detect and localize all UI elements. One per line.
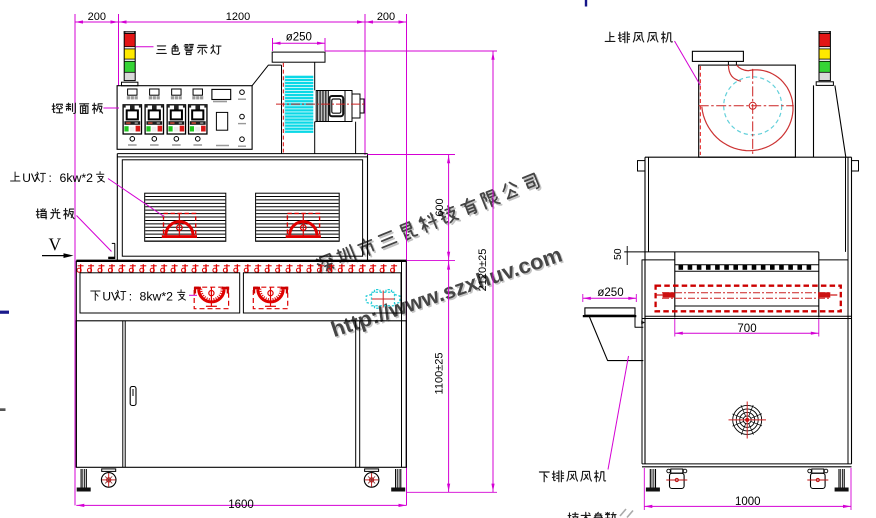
svg-text:ø250: ø250 [286, 32, 312, 44]
svg-text:V: V [49, 235, 62, 255]
svg-text:ø250: ø250 [597, 287, 623, 299]
svg-text::: : [49, 171, 52, 185]
svg-text:2120±25: 2120±25 [477, 249, 489, 292]
svg-text:1200: 1200 [226, 11, 250, 23]
svg-text:200: 200 [377, 11, 395, 23]
svg-text:6kw*2: 6kw*2 [60, 171, 94, 185]
svg-text:700: 700 [737, 323, 756, 335]
svg-text:1100±25: 1100±25 [434, 353, 446, 395]
svg-text::: : [129, 289, 132, 303]
svg-text:http://www.szxhuv.com: http://www.szxhuv.com [328, 242, 565, 342]
svg-text:1600: 1600 [228, 499, 254, 511]
svg-text:600: 600 [434, 198, 446, 216]
svg-text:UV: UV [102, 289, 119, 303]
svg-text:1000: 1000 [735, 496, 761, 508]
svg-text:8kw*2: 8kw*2 [140, 289, 174, 303]
svg-text:50: 50 [612, 248, 624, 260]
svg-text:UV: UV [22, 171, 39, 185]
svg-text:200: 200 [88, 11, 106, 23]
